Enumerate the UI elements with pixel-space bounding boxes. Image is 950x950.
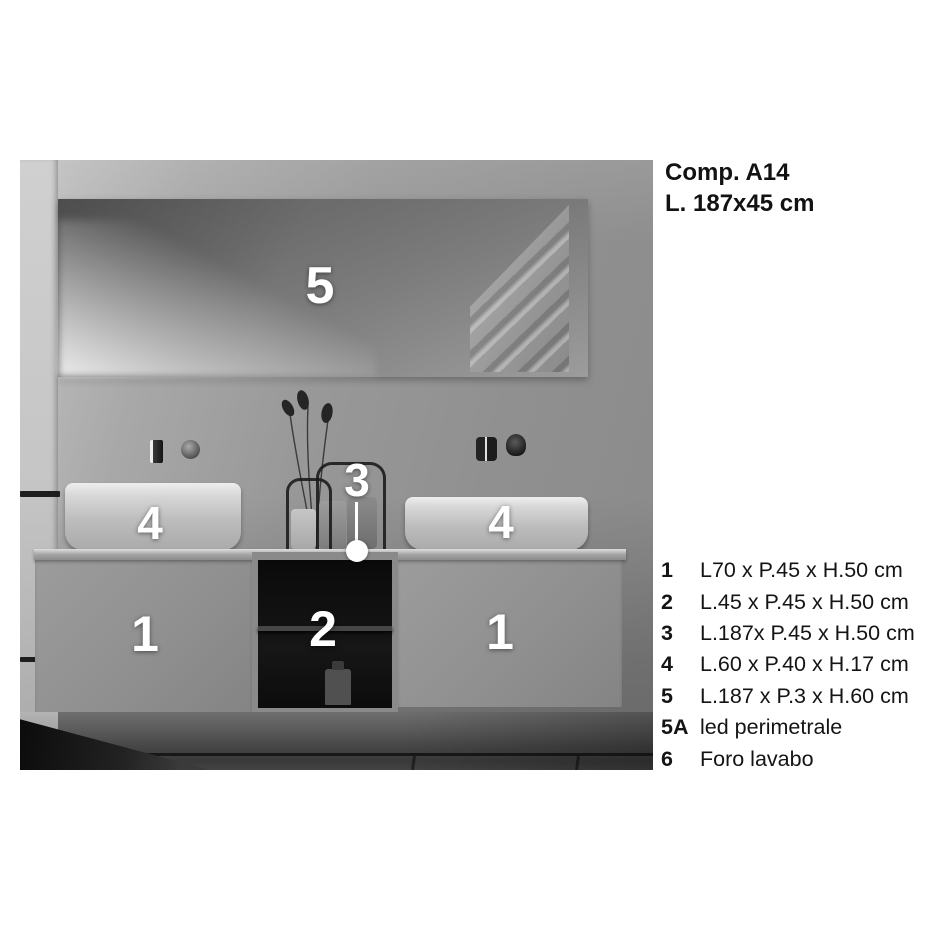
faucet-spout-right (476, 437, 497, 461)
composition-name: Comp. A14 (665, 157, 814, 188)
legend-key: 2 (661, 590, 700, 615)
legend-label: L.60 x P.40 x H.17 cm (700, 652, 909, 677)
marker-4-basin-right: 4 (488, 499, 514, 545)
legend-row: 5 L.187 x P.3 x H.60 cm (661, 681, 915, 712)
marker-3-countertop: 3 (344, 457, 370, 503)
marker-3-leader-line (355, 502, 358, 544)
legend-label: L.45 x P.45 x H.50 cm (700, 590, 909, 615)
legend-key: 5 (661, 684, 700, 709)
legend-key: 3 (661, 621, 700, 646)
legend-label: led perimetrale (700, 715, 842, 740)
legend-row: 1 L70 x P.45 x H.50 cm (661, 555, 915, 586)
marker-1-door-right: 1 (486, 607, 514, 657)
faucet-handle-left (181, 440, 200, 459)
legend-key: 1 (661, 558, 700, 583)
mirror-stone-wall-reflection (470, 205, 569, 372)
marker-4-basin-left: 4 (137, 500, 163, 546)
legend-row: 4 L.60 x P.40 x H.17 cm (661, 649, 915, 680)
legend-key: 6 (661, 747, 700, 772)
legend-key: 5A (661, 715, 700, 740)
legend-row: 3 L.187x P.45 x H.50 cm (661, 618, 915, 649)
product-sheet: 5 4 4 (0, 0, 950, 950)
bathroom-photo: 5 4 4 (20, 160, 653, 770)
legend-row: 6 Foro lavabo (661, 743, 915, 774)
legend-row: 2 L.45 x P.45 x H.50 cm (661, 586, 915, 617)
compartment-bottle-cap (332, 661, 344, 670)
marker-5-mirror: 5 (306, 260, 335, 312)
wall-niche-edge-upper (20, 491, 60, 497)
marker-1-door-left: 1 (131, 609, 159, 659)
faucet-handle-right (506, 434, 526, 456)
legend-label: L.187 x P.3 x H.60 cm (700, 684, 909, 709)
marker-3-leader-dot (346, 540, 368, 562)
composition-header: Comp. A14 L. 187x45 cm (665, 157, 814, 219)
dimensions-legend: 1 L70 x P.45 x H.50 cm 2 L.45 x P.45 x H… (661, 555, 915, 775)
faucet-spout-left (150, 440, 163, 463)
marker-2-open-shelf: 2 (309, 604, 337, 654)
legend-label: L70 x P.45 x H.50 cm (700, 558, 903, 583)
compartment-bottle (325, 669, 351, 705)
legend-label: Foro lavabo (700, 747, 814, 772)
legend-row: 5A led perimetrale (661, 712, 915, 743)
composition-size: L. 187x45 cm (665, 188, 814, 219)
legend-key: 4 (661, 652, 700, 677)
legend-label: L.187x P.45 x H.50 cm (700, 621, 915, 646)
